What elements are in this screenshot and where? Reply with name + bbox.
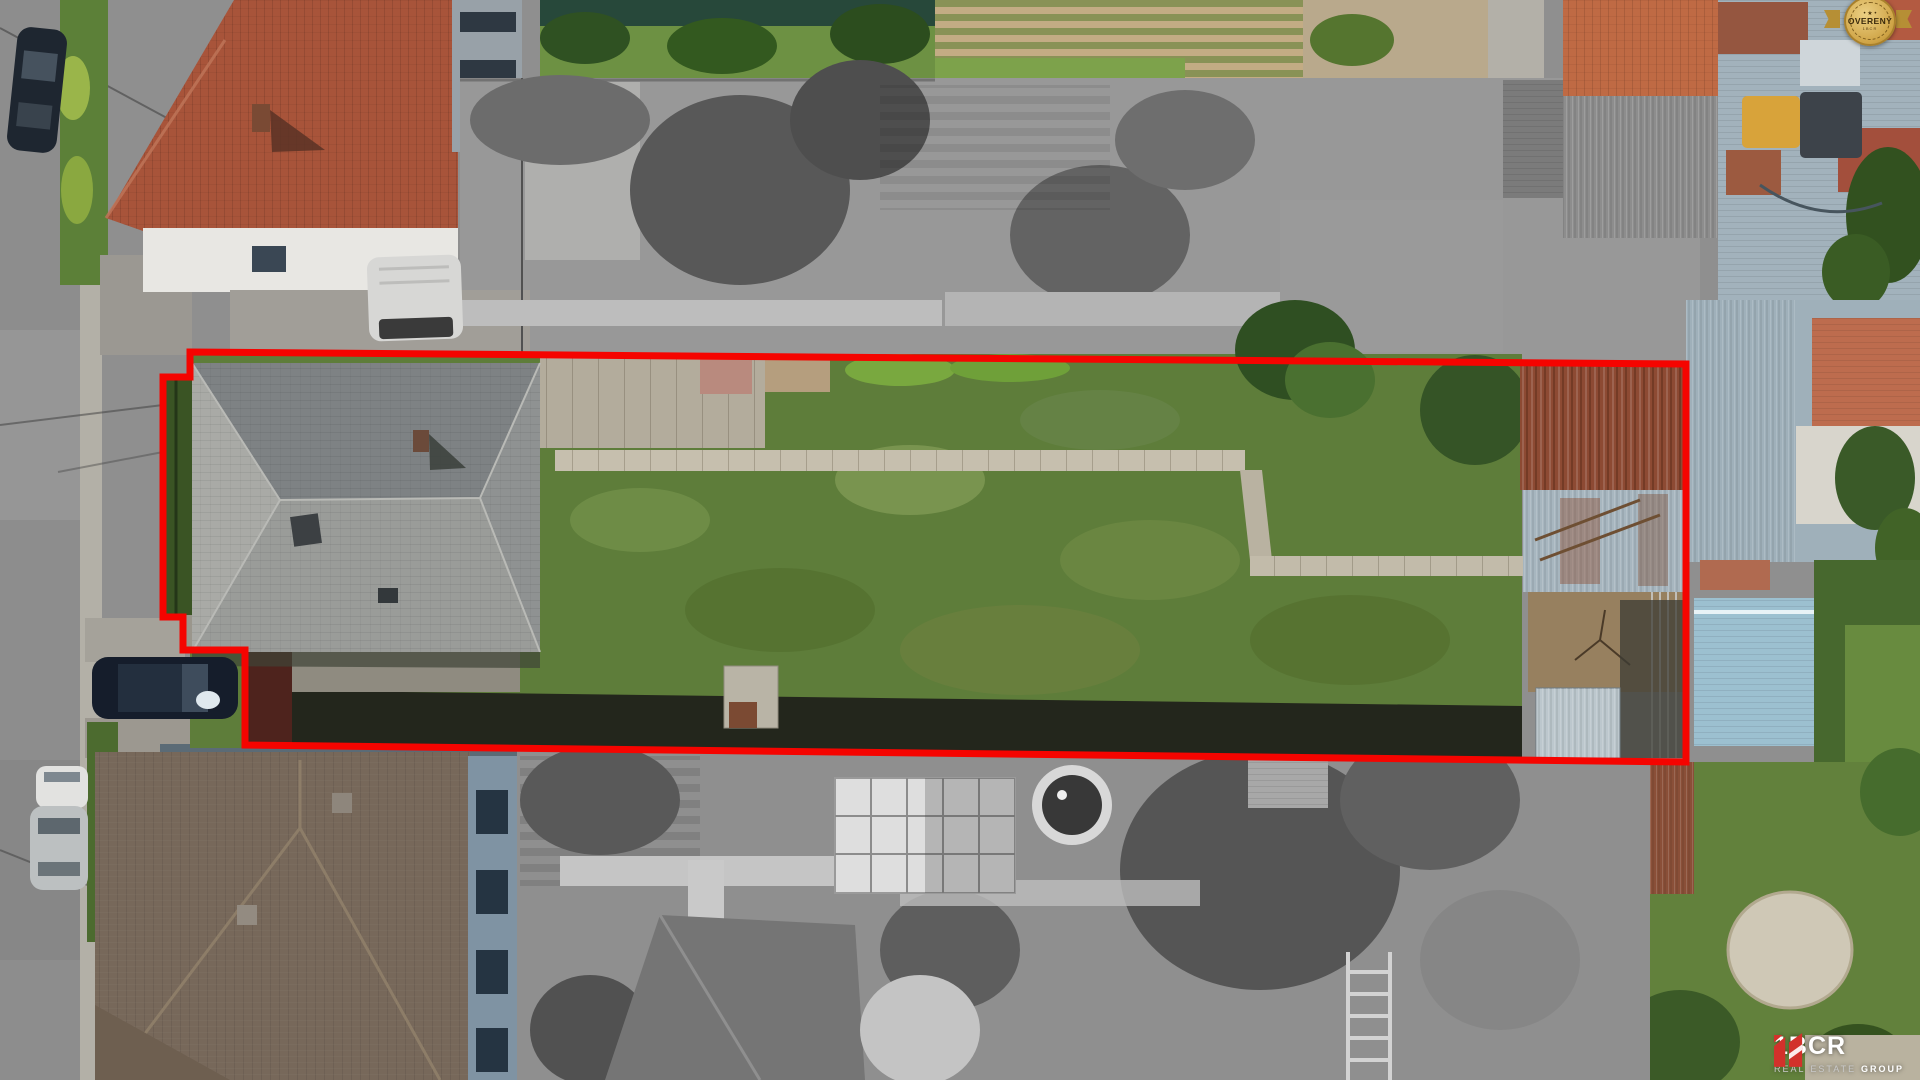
yellow-machine xyxy=(1742,96,1800,148)
tree xyxy=(1822,234,1890,310)
skylight xyxy=(252,246,286,272)
window xyxy=(460,60,516,80)
chimney xyxy=(252,104,270,132)
round-tub xyxy=(1032,765,1112,845)
tree xyxy=(830,4,930,64)
shadow xyxy=(1620,600,1686,758)
dark-suv xyxy=(92,657,238,719)
aerial-scene xyxy=(0,0,1920,1080)
verified-badge: • ★ • OVERENÝ 1BCR xyxy=(1822,0,1914,48)
subject-house-roof xyxy=(192,363,540,668)
badge-label: OVERENÝ xyxy=(1848,17,1892,26)
sun-glint xyxy=(196,691,220,709)
tree-gray xyxy=(520,745,680,855)
top-color-strip xyxy=(540,0,1544,80)
tree xyxy=(1285,342,1375,418)
concrete-pad xyxy=(724,666,778,728)
subject-plot xyxy=(163,300,1686,760)
bottom-right-garden xyxy=(1620,748,1920,1080)
driveway xyxy=(85,618,185,662)
van-windshield xyxy=(379,317,454,340)
metal-cover xyxy=(729,702,757,728)
lawn xyxy=(1845,625,1920,762)
ladder xyxy=(1348,952,1390,1080)
gray-path xyxy=(462,300,942,326)
outbuildings xyxy=(1520,366,1686,758)
chimney xyxy=(332,793,352,813)
gray-path xyxy=(945,292,1280,326)
tree xyxy=(1420,355,1530,465)
chimney xyxy=(237,905,257,925)
window xyxy=(460,12,516,32)
rust-patch xyxy=(1726,150,1781,195)
rust-patch xyxy=(1718,2,1808,54)
garden-rows-gray xyxy=(880,85,1110,210)
white-van xyxy=(367,254,464,341)
roof-vent xyxy=(290,513,322,547)
right-neighbor-strip xyxy=(1686,300,1920,762)
path xyxy=(1488,0,1544,80)
white-car xyxy=(36,766,88,808)
badge-sublabel: 1BCR xyxy=(1863,26,1878,31)
aerial-photo: • ★ • OVERENÝ 1BCR 1BCR REAL ESTATE GROU… xyxy=(0,0,1920,1080)
stone-circle xyxy=(1728,892,1852,1008)
pink-slab xyxy=(700,356,752,394)
window xyxy=(476,1028,508,1072)
window xyxy=(476,950,508,994)
window xyxy=(476,790,508,834)
silver-car xyxy=(30,806,88,890)
badge-stars: • ★ • xyxy=(1864,11,1877,17)
tree xyxy=(540,12,630,64)
bush xyxy=(61,156,93,224)
grass-verge xyxy=(60,0,108,285)
tree xyxy=(667,18,777,74)
grayscale-garden-bottom xyxy=(515,730,1650,1080)
tree-gray xyxy=(1115,90,1255,190)
tagline-group: GROUP xyxy=(1861,1064,1904,1074)
greenhouse xyxy=(835,778,1015,893)
dark-cab xyxy=(1800,92,1862,158)
tree-gray xyxy=(470,75,650,165)
agency-logo: 1BCR REAL ESTATE GROUP xyxy=(1774,1032,1904,1074)
logo-icon xyxy=(1774,1032,1804,1068)
corrugated-roof xyxy=(1686,300,1796,562)
gold-seal: • ★ • OVERENÝ 1BCR xyxy=(1844,0,1896,46)
window xyxy=(476,870,508,914)
chimney xyxy=(413,430,429,452)
skylight xyxy=(378,588,398,603)
ribbon-right xyxy=(1896,10,1912,28)
ribbon-left xyxy=(1824,10,1840,28)
crops xyxy=(1310,14,1394,66)
tagline-estate: ESTATE xyxy=(1810,1064,1856,1074)
